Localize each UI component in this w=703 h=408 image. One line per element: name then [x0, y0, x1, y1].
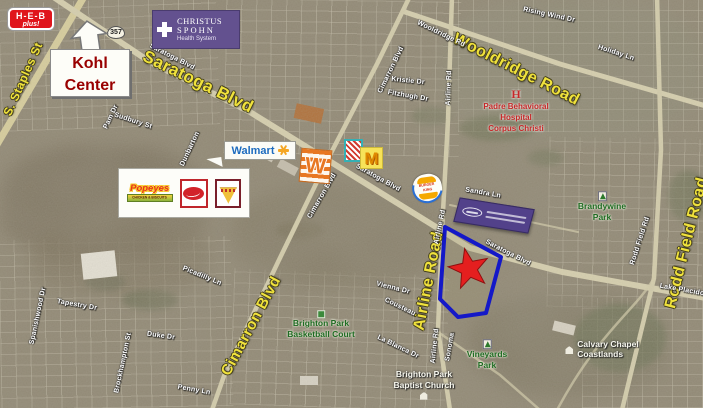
whataburger-logo: W	[299, 148, 333, 185]
christus-spohn-logo: CHRISTUS SPOHN Health System	[152, 10, 240, 49]
park-label: Brandywine	[578, 202, 626, 212]
walmart-spark-icon	[278, 145, 289, 156]
pizza-fan-logo	[215, 179, 241, 208]
park-label: Basketball Court	[287, 330, 355, 340]
hospital-label: Padre Behavioral	[483, 102, 548, 112]
church-icon	[420, 392, 428, 400]
banner-emblem	[461, 206, 483, 218]
park-label: Vineyards	[467, 350, 507, 360]
poi-vineyards-park: Vineyards Park	[467, 339, 507, 371]
popeyes-name: Popeyes	[127, 184, 173, 194]
hospital-label: Hospital	[500, 113, 532, 123]
poi-brighton-baptist-church: Brighton Park Baptist Church	[394, 370, 455, 400]
park-tree-icon	[482, 339, 491, 349]
hospital-label: Corpus Christi	[488, 123, 544, 133]
popeyes-sub: CHICKEN & BISCUITS	[132, 197, 167, 200]
park-label: Brighton Park	[293, 319, 349, 329]
poi-calvary-chapel: Calvary Chapel Coastlands	[565, 340, 638, 360]
street-label: Airline Rd	[445, 70, 453, 105]
christus-line: Health System	[177, 36, 222, 42]
heb-logo: H-E-B plus!	[8, 8, 54, 30]
poi-brandywine-park: Brandywine Park	[578, 191, 626, 223]
popeyes-logo: Popeyes CHICKEN & BISCUITS	[127, 184, 173, 203]
basketball-court-icon	[317, 310, 325, 318]
church-label: Brighton Park	[396, 370, 452, 380]
church-label: Baptist Church	[394, 381, 455, 391]
heb-plus-label: plus!	[10, 21, 52, 28]
dairy-queen-logo	[180, 179, 208, 208]
whataburger-w: W	[304, 154, 327, 178]
walmart-logo: Walmart	[224, 141, 296, 160]
kohl-line: Kohl	[51, 53, 129, 75]
site-aerial-map: Saratoga Blvd Wooldridge Road Airline Ro…	[0, 0, 703, 408]
park-label: Park	[478, 361, 496, 371]
park-tree-icon	[598, 191, 607, 201]
walmart-name: Walmart	[232, 145, 275, 157]
health-cross-icon	[157, 22, 172, 37]
church-icon	[565, 346, 573, 354]
heb-name: H-E-B	[10, 12, 52, 21]
park-label: Park	[593, 213, 611, 223]
kohl-line: Center	[51, 75, 129, 97]
poi-padre-behavioral-hospital: H Padre Behavioral Hospital Corpus Chris…	[483, 87, 548, 133]
banner-text-lines	[485, 211, 526, 224]
church-label: Coastlands	[577, 350, 623, 360]
poi-brighton-basketball: Brighton Park Basketball Court	[287, 310, 355, 340]
mcdonalds-m: M	[364, 150, 378, 167]
restaurant-logos-box: Popeyes CHICKEN & BISCUITS	[118, 168, 250, 218]
hospital-h-marker: H	[511, 87, 520, 101]
christus-line: SPOHN	[177, 26, 222, 35]
popeyes-banner: CHICKEN & BISCUITS	[127, 194, 173, 202]
kohl-center-sign: Kohl Center	[50, 49, 130, 97]
mcdonalds-logo: M	[360, 147, 383, 169]
christus-text: CHRISTUS SPOHN Health System	[177, 17, 222, 42]
dairy-queen-ellipse-logo	[183, 187, 204, 200]
